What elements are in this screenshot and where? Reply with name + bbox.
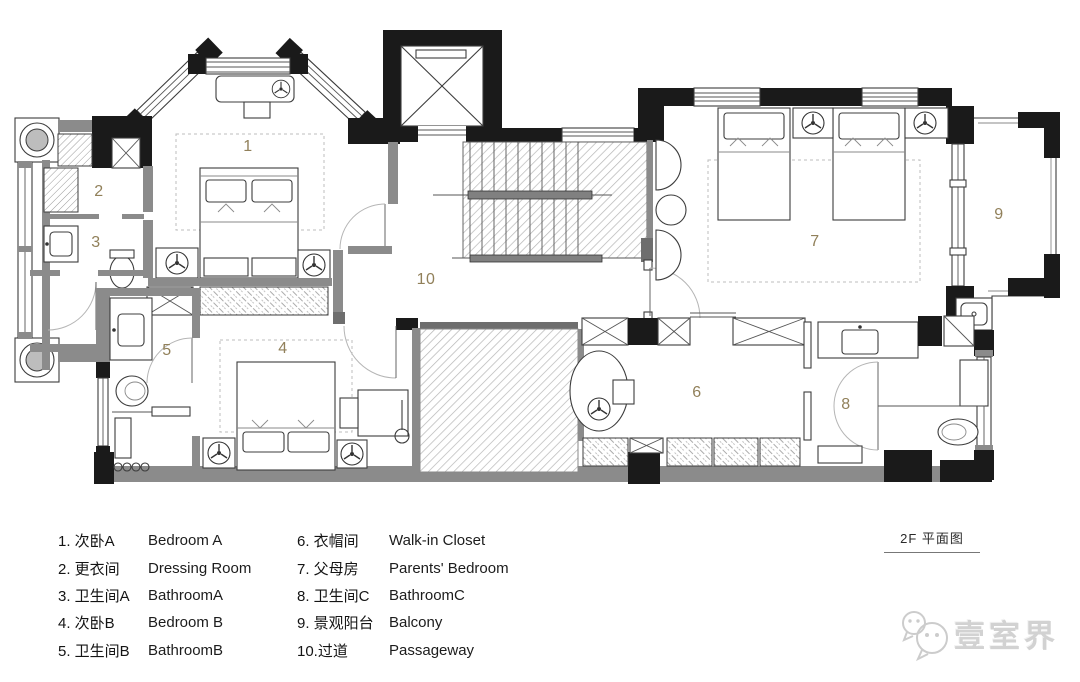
toilet [938, 419, 978, 445]
pocket-door-frame [804, 392, 811, 440]
room-label-5: 5 [162, 342, 171, 360]
wardrobe [200, 287, 328, 315]
legend-en-label: Dressing Room [148, 560, 251, 577]
staircase [433, 140, 653, 262]
brand-name: 壹室界 [954, 611, 1059, 656]
legend-zh-label: 5. 卫生间B [58, 640, 148, 661]
legend-row: 9. 景观阳台Balcony [297, 609, 509, 636]
pillow [252, 180, 292, 202]
legend-en-label: BathroomC [389, 587, 465, 604]
room-label-4: 4 [278, 340, 287, 358]
legend-zh-label: 10.过道 [297, 640, 389, 661]
legend-zh-label: 9. 景观阳台 [297, 612, 389, 633]
legend-row: 1. 次卧ABedroom A [58, 527, 293, 554]
floor-plan-page: 12345678910 1. 次卧ABedroom A2. 更衣间Dressin… [0, 0, 1080, 682]
bathroom-a-sink [44, 226, 78, 262]
room-label-8: 8 [841, 396, 850, 414]
legend-zh-label: 3. 卫生间A [58, 585, 148, 606]
legend-en-label: Passageway [389, 642, 474, 659]
floor-plan-drawing [0, 0, 1080, 520]
legend-row: 4. 次卧BBedroom B [58, 609, 293, 636]
pillow [206, 180, 246, 202]
pillow [288, 432, 329, 452]
legend-zh-label: 6. 衣帽间 [297, 530, 389, 551]
brand-watermark: 壹室界 [896, 604, 1059, 662]
elevator [383, 30, 502, 142]
legend-en-label: Bedroom A [148, 532, 222, 549]
bed [237, 362, 335, 470]
legend-zh-label: 4. 次卧B [58, 612, 148, 633]
wechat-bubbles-icon [896, 604, 954, 662]
room-label-10: 10 [417, 271, 436, 289]
pillow [839, 113, 899, 139]
legend-en-label: Balcony [389, 614, 442, 631]
legend-zh-label: 8. 卫生间C [297, 585, 389, 606]
legend-row: 5. 卫生间BBathroomB [58, 637, 293, 664]
legend-row: 6. 衣帽间Walk-in Closet [297, 527, 509, 554]
shower-bench [115, 418, 131, 458]
wardrobe [714, 438, 758, 466]
sink-counter [110, 298, 152, 360]
bathroom-c [804, 316, 988, 463]
bedroom-b [147, 287, 409, 470]
wardrobe [760, 438, 800, 466]
wardrobe [667, 438, 712, 466]
legend-en-label: Walk-in Closet [389, 532, 485, 549]
legend-en-label: BathroomA [148, 587, 223, 604]
stool [613, 380, 634, 404]
legend-column-1: 1. 次卧ABedroom A2. 更衣间Dressing Room3. 卫生间… [58, 527, 293, 664]
pillow [243, 432, 284, 452]
parents-bedroom [708, 108, 948, 282]
walk-in-closet [570, 313, 805, 466]
pocket-door-frame [804, 322, 811, 368]
room-label-3: 3 [91, 234, 100, 252]
central-void [412, 322, 584, 472]
bay-chair [244, 102, 270, 118]
legend-en-label: Bedroom B [148, 614, 223, 631]
pillow [724, 113, 784, 139]
stair-hall-wall [502, 88, 664, 142]
vanity [818, 322, 918, 358]
wardrobe [583, 438, 628, 466]
legend-column-2: 6. 衣帽间Walk-in Closet7. 父母房Parents' Bedro… [297, 527, 509, 664]
shelf [960, 360, 988, 406]
room-label-9: 9 [994, 206, 1003, 224]
legend-row: 7. 父母房Parents' Bedroom [297, 554, 509, 581]
room-label-6: 6 [692, 384, 701, 402]
legend-row: 2. 更衣间Dressing Room [58, 554, 293, 581]
legend-row: 3. 卫生间ABathroomA [58, 582, 293, 609]
legend-en-label: BathroomB [148, 642, 223, 659]
room-label-7: 7 [810, 233, 819, 251]
desk-chair [340, 398, 358, 428]
legend-row: 8. 卫生间CBathroomC [297, 582, 509, 609]
room-label-2: 2 [94, 183, 103, 201]
legend-zh-label: 2. 更衣间 [58, 558, 148, 579]
closet-hatch [58, 134, 92, 166]
room2-closet [44, 168, 78, 212]
drawing-title: 2F 平面图 [884, 528, 980, 553]
legend-en-label: Parents' Bedroom [389, 560, 509, 577]
legend: 1. 次卧ABedroom A2. 更衣间Dressing Room3. 卫生间… [58, 527, 509, 664]
bench [818, 446, 862, 463]
toilet [116, 376, 148, 406]
legend-zh-label: 1. 次卧A [58, 530, 148, 551]
legend-zh-label: 7. 父母房 [297, 558, 389, 579]
room-label-1: 1 [243, 138, 252, 156]
legend-row: 10.过道Passageway [297, 637, 509, 664]
